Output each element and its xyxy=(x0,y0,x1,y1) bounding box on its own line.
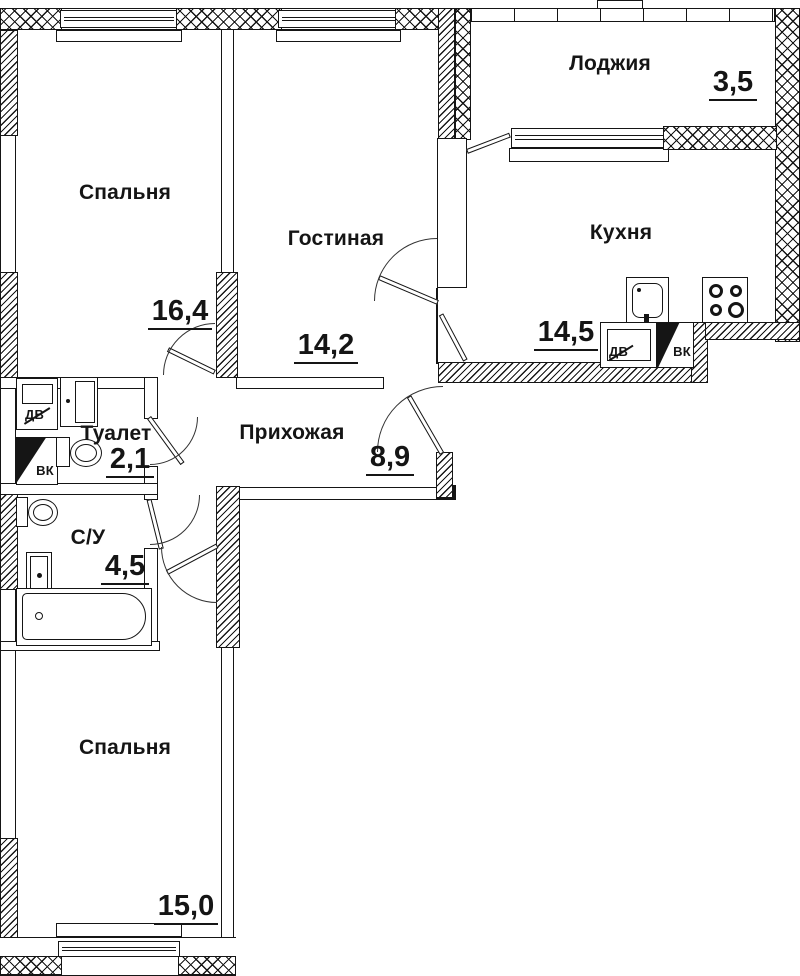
room-label-bedroom2: Спальня xyxy=(40,736,210,760)
bearing-wall-segment xyxy=(0,838,18,938)
bearing-wall-segment xyxy=(438,8,455,140)
vent-label-vk: ВК xyxy=(36,463,54,478)
area-value: 14,5 xyxy=(534,316,598,351)
kitchen-sink-drain xyxy=(637,288,641,292)
vent-box-vk-toilet: ВК xyxy=(16,437,58,485)
washbasin-drain xyxy=(37,573,42,578)
floor-plan: ДВ ВК ДВ ВК xyxy=(0,0,800,976)
washbasin-inner xyxy=(75,381,95,423)
exterior-wall-segment xyxy=(455,8,471,140)
window-sill xyxy=(509,148,669,162)
door-leaf-passage xyxy=(439,313,468,361)
room-area-bedroom2: 15,0 xyxy=(141,890,231,923)
bearing-wall-segment xyxy=(216,486,240,648)
room-label-loggia: Лоджия xyxy=(535,52,685,76)
bearing-wall-segment xyxy=(705,322,800,340)
room-label-living: Гостиная xyxy=(251,227,421,251)
exterior-wall-segment xyxy=(0,956,62,975)
interior-wall xyxy=(144,377,158,419)
interior-wall xyxy=(234,487,438,500)
room-label-bathroom: С/У xyxy=(43,526,133,550)
exterior-wall-segment xyxy=(178,956,236,975)
interior-wall xyxy=(221,30,234,278)
room-area-bedroom1: 16,4 xyxy=(135,295,225,328)
area-value: 4,5 xyxy=(101,550,149,585)
door-leaf-balcony xyxy=(466,133,511,154)
stove xyxy=(702,277,748,323)
room-label-kitchen: Кухня xyxy=(546,221,696,245)
interior-wall xyxy=(236,377,384,389)
area-value: 16,4 xyxy=(148,295,212,330)
window-sill xyxy=(276,30,401,42)
vent-box-inner xyxy=(22,384,53,404)
stove-burner xyxy=(709,284,723,298)
bathtub xyxy=(16,588,152,646)
room-area-kitchen: 14,5 xyxy=(521,316,611,349)
bathtub-drain xyxy=(35,612,43,620)
window-bedroom2 xyxy=(58,941,180,957)
window-sill xyxy=(56,30,182,42)
exterior-wall-segment xyxy=(176,8,282,30)
stove-burner xyxy=(710,304,722,316)
exterior-wall-segment xyxy=(0,8,62,30)
loggia-glazing xyxy=(470,8,775,22)
washbasin-tap xyxy=(66,399,70,403)
vent-label-vk: ВК xyxy=(673,344,691,359)
room-area-living: 14,2 xyxy=(281,329,371,362)
interior-wall xyxy=(437,138,467,288)
bearing-wall-segment xyxy=(436,452,453,498)
loggia-glazing-post xyxy=(597,0,643,9)
exterior-wall-segment xyxy=(663,126,777,150)
room-area-toilet: 2,1 xyxy=(85,443,175,476)
room-area-hallway: 8,9 xyxy=(345,441,435,474)
washbasin-toilet xyxy=(60,377,98,427)
door-swing-arc xyxy=(163,323,267,427)
area-value: 15,0 xyxy=(154,890,218,925)
stove-burner xyxy=(730,285,742,297)
room-area-loggia: 3,5 xyxy=(690,66,776,99)
window-loggia-kitchen xyxy=(511,128,667,148)
vent-box-dv-toilet: ДВ xyxy=(16,378,58,430)
window-bedroom1 xyxy=(60,10,178,28)
wc-bowl xyxy=(28,499,58,526)
wc-tank xyxy=(16,497,28,527)
room-area-bathroom: 4,5 xyxy=(80,550,170,583)
room-label-bedroom1: Спальня xyxy=(40,181,210,205)
area-value: 3,5 xyxy=(709,66,757,101)
bearing-wall-segment xyxy=(0,272,18,378)
wc-bowl-inner xyxy=(33,504,53,521)
bearing-wall-segment xyxy=(0,30,18,136)
window-living xyxy=(278,10,399,28)
area-value: 8,9 xyxy=(366,441,414,476)
vent-box-vk-kitchen: ВК xyxy=(656,322,694,368)
stove-burner xyxy=(728,302,744,318)
area-value: 14,2 xyxy=(294,329,358,364)
exterior-wall-right xyxy=(775,8,800,342)
window-sill xyxy=(56,923,182,937)
area-value: 2,1 xyxy=(106,443,154,478)
